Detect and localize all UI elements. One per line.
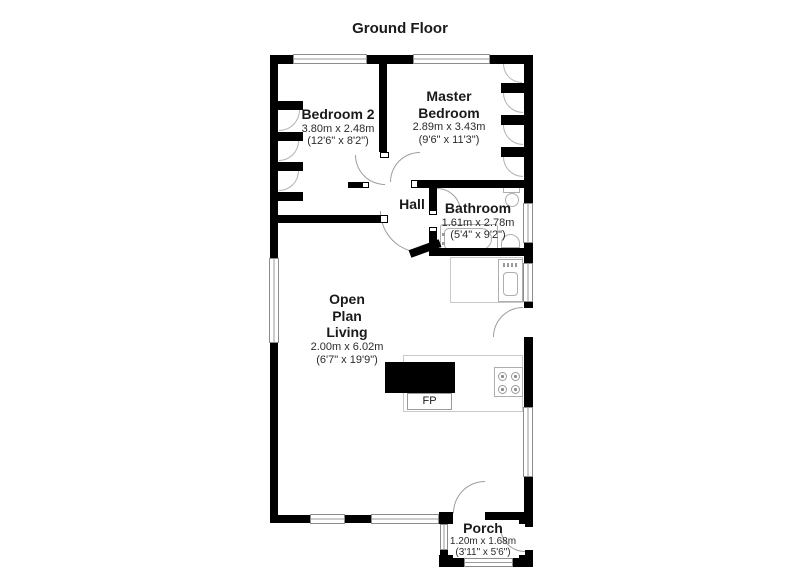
wardrobe-stub [278, 162, 303, 171]
window [413, 54, 490, 64]
room-name: Bedroom [413, 105, 486, 122]
window [269, 258, 279, 343]
wall-segment [525, 512, 533, 527]
wall-segment [440, 558, 464, 567]
room-name: Plan [311, 308, 384, 325]
room-label-porch: Porch 1.20m x 1.68m (3'11" x 5'6") [450, 521, 516, 558]
room-dims-metric: 1.61m x 2.78m [442, 217, 515, 230]
room-dims-imperial: (9'6" x 11'3") [413, 134, 486, 147]
wardrobe-stub [278, 132, 303, 141]
floor-plan: Ground Floor FP [0, 0, 800, 582]
wall-segment [485, 512, 521, 520]
living-porch-door-arc [453, 481, 485, 513]
wall-segment [270, 515, 310, 523]
wardrobe-door-arc [279, 110, 300, 131]
room-label-bathroom: Bathroom 1.61m x 2.78m (5'4" x 9'2") [442, 200, 515, 242]
faucet-icon [503, 263, 518, 267]
kitchen-sink-unit [498, 259, 523, 302]
door-hinge-stub [362, 182, 369, 188]
room-label-hall: Hall [399, 196, 425, 213]
room-label-bedroom2: Bedroom 2 3.80m x 2.48m (12'6" x 8'2") [301, 106, 374, 148]
stove-hob [494, 367, 523, 397]
room-label-open-plan-living: Open Plan Living 2.00m x 6.02m (6'7" x 1… [311, 291, 384, 366]
wall-segment [367, 55, 413, 64]
wardrobe-door-arc [503, 157, 523, 177]
wall-segment [270, 55, 278, 258]
door-hinge-stub [429, 227, 437, 232]
room-dims-imperial: (5'4" x 9'2") [442, 229, 515, 242]
room-dims-imperial: (6'7" x 19'9") [311, 354, 384, 367]
room-name: Living [311, 324, 384, 341]
burner-icon [511, 372, 520, 381]
window [371, 514, 439, 524]
room-name: Bedroom 2 [301, 106, 374, 123]
wardrobe-stub [501, 147, 524, 157]
master-bedroom-door-arc [390, 152, 420, 182]
wardrobe-stub [501, 115, 524, 125]
wall-segment [524, 302, 533, 308]
room-name: Porch [450, 521, 516, 536]
window [440, 524, 448, 550]
fireplace-label: FP [407, 393, 452, 410]
door-hinge-stub [429, 210, 437, 215]
fireplace [385, 362, 455, 393]
wall-segment [270, 343, 278, 523]
wardrobe-stub [278, 101, 303, 110]
door-hinge-stub [411, 180, 418, 188]
wardrobe-door-arc [503, 93, 523, 113]
window [293, 54, 367, 64]
wall-segment [418, 180, 524, 188]
room-name: Bathroom [442, 200, 515, 217]
room-dims-metric: 3.80m x 2.48m [301, 123, 374, 136]
room-dims-imperial: (12'6" x 8'2") [301, 135, 374, 148]
door-hinge-stub [380, 215, 388, 223]
room-label-master-bedroom: Master Bedroom 2.89m x 3.43m (9'6" x 11'… [413, 88, 486, 147]
bedroom2-door-arc [355, 155, 385, 185]
window [523, 203, 533, 243]
wardrobe-stub [501, 83, 524, 93]
door-hinge-stub [380, 152, 389, 158]
room-dims-imperial: (3'11" x 5'6") [450, 547, 516, 558]
window [523, 407, 533, 477]
window [310, 514, 345, 524]
wall-segment [429, 248, 524, 256]
wall-segment [440, 512, 448, 524]
wardrobe-door-arc [279, 141, 299, 161]
kitchen-sink-basin [503, 272, 518, 296]
page-title: Ground Floor [352, 20, 448, 38]
side-entrance-door-arc [493, 307, 523, 337]
window [523, 263, 533, 302]
burner-icon [498, 385, 507, 394]
burner-icon [511, 385, 520, 394]
wall-segment [525, 550, 533, 567]
wall-segment [524, 55, 533, 203]
room-name: Open [311, 291, 384, 308]
wardrobe-door-arc [279, 171, 299, 191]
room-name: Master [413, 88, 486, 105]
room-dims-metric: 2.00m x 6.02m [311, 341, 384, 354]
wardrobe-door-arc [503, 64, 522, 83]
wall-segment [348, 182, 362, 188]
wall-segment [429, 188, 437, 210]
wall-segment [345, 515, 371, 523]
wardrobe-stub [278, 192, 303, 201]
burner-icon [498, 372, 507, 381]
window [464, 558, 513, 567]
wardrobe-door-arc [503, 125, 523, 145]
room-dims-metric: 2.89m x 3.43m [413, 121, 486, 134]
wall-segment [524, 337, 533, 407]
room-dims-metric: 1.20m x 1.68m [450, 536, 516, 547]
wall-segment [379, 55, 387, 152]
wall-segment [524, 243, 533, 263]
wall-segment [270, 215, 380, 223]
